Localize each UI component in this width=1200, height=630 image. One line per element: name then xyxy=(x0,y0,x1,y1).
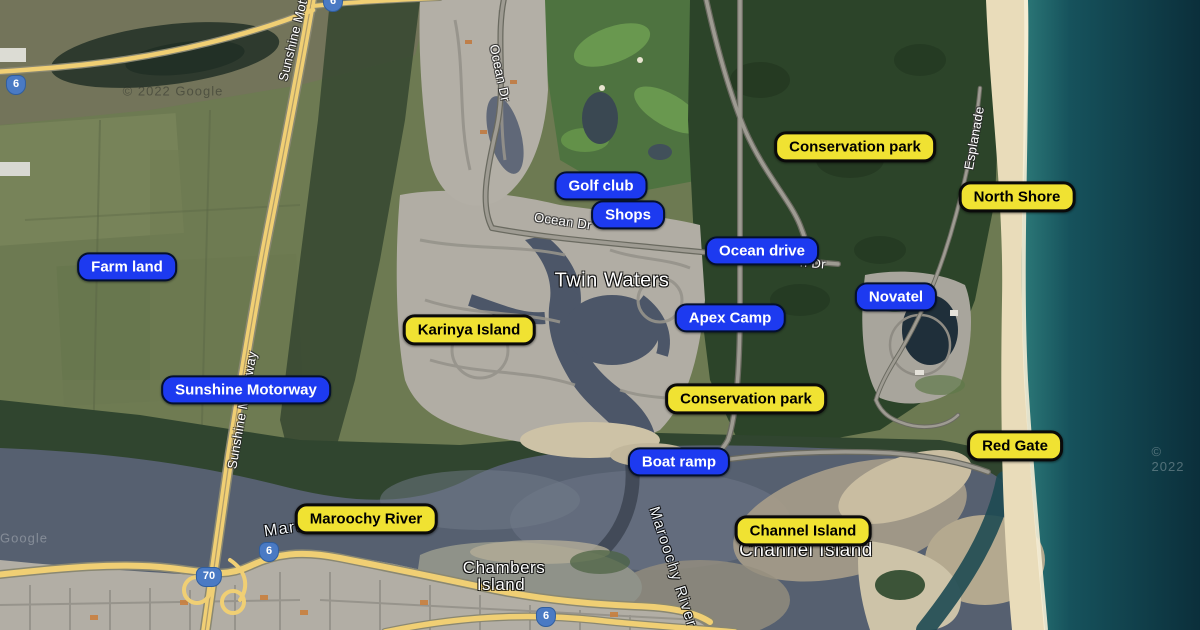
map-label-red-gate[interactable]: Red Gate xyxy=(967,430,1063,461)
map-label-boat-ramp[interactable]: Boat ramp xyxy=(628,447,730,476)
map-label-maroochy-river[interactable]: Maroochy River xyxy=(295,503,438,534)
map-label-karinya-island[interactable]: Karinya Island xyxy=(403,314,536,345)
map-label-apex-camp[interactable]: Apex Camp xyxy=(675,303,786,332)
route-shield-70: 70 xyxy=(196,567,222,587)
map-label-north-shore[interactable]: North Shore xyxy=(959,181,1076,212)
route-shield-6-3: 6 xyxy=(259,542,279,562)
map-label-conservation-park[interactable]: Conservation park xyxy=(774,131,936,162)
map-attribution-2022: © 2022 xyxy=(1152,444,1185,474)
map-attribution-google: Google xyxy=(0,531,48,546)
map-label-golf-club[interactable]: Golf club xyxy=(555,171,648,200)
route-shield-6: 6 xyxy=(6,75,26,95)
place-name-island: Island xyxy=(477,575,525,595)
satellite-map-screenshot: Ocean DrOcean Drn DrEsplanadeSunshine Mo… xyxy=(0,0,1200,630)
map-attribution-2022-google: © 2022 Google xyxy=(123,84,224,99)
map-label-farm-land[interactable]: Farm land xyxy=(77,252,177,281)
map-label-ocean-drive[interactable]: Ocean drive xyxy=(705,236,819,265)
place-name-twin-waters: Twin Waters xyxy=(555,270,670,293)
map-label-shops[interactable]: Shops xyxy=(591,200,665,229)
map-label-channel-island[interactable]: Channel Island xyxy=(735,515,872,546)
map-label-conservation-park-2[interactable]: Conservation park xyxy=(665,383,827,414)
map-label-novatel[interactable]: Novatel xyxy=(855,282,937,311)
map-label-sunshine-motorway[interactable]: Sunshine Motorway xyxy=(161,375,331,404)
route-shield-6-4: 6 xyxy=(536,607,556,627)
